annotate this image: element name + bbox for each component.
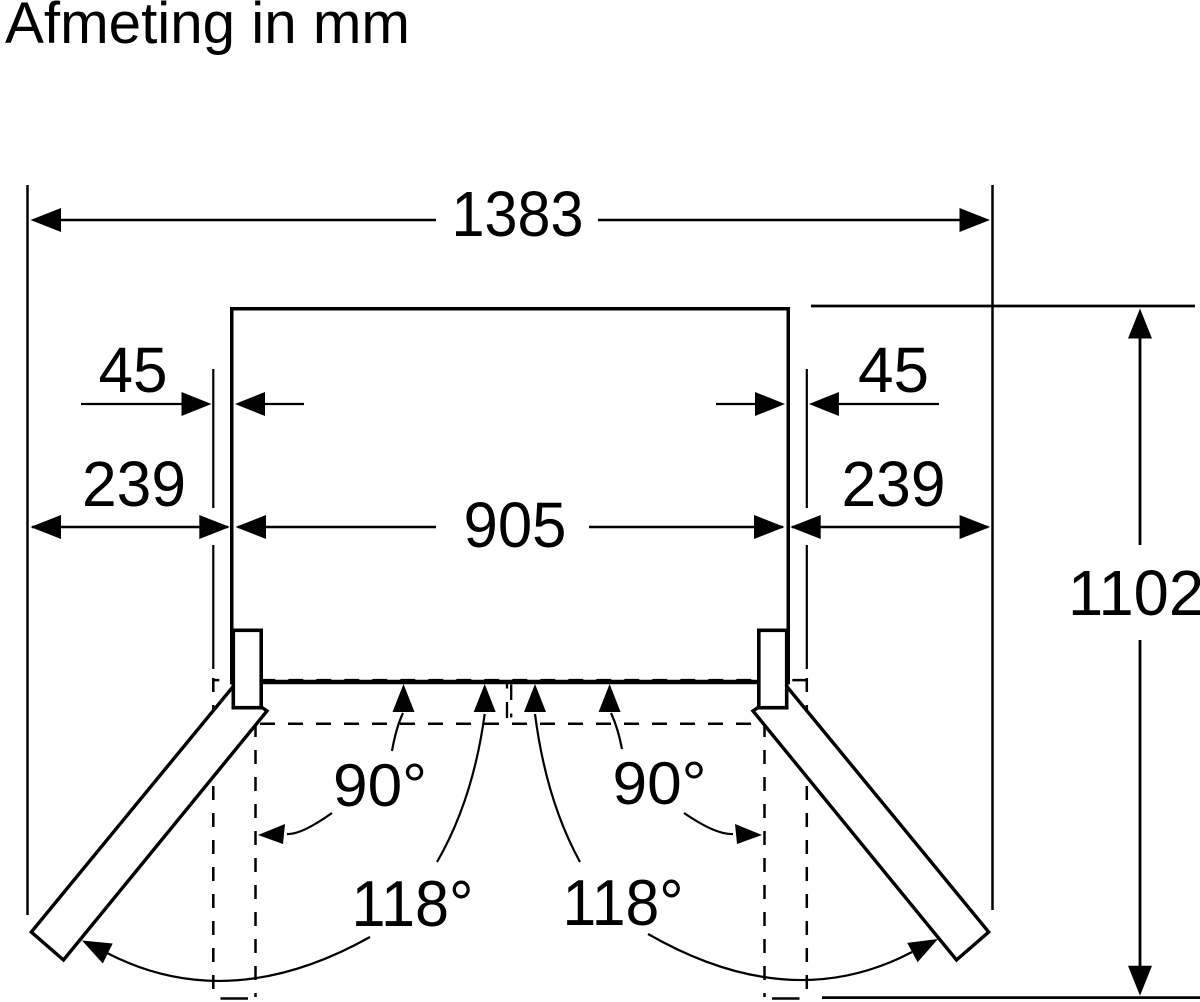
svg-text:239: 239 <box>842 448 946 520</box>
svg-text:239: 239 <box>82 448 186 520</box>
svg-text:1102: 1102 <box>1068 557 1200 629</box>
svg-text:905: 905 <box>464 489 567 561</box>
svg-text:118°: 118° <box>352 867 474 940</box>
svg-text:1383: 1383 <box>452 178 584 250</box>
svg-text:118°: 118° <box>563 866 684 939</box>
svg-text:45: 45 <box>858 334 929 406</box>
svg-text:Afmeting in mm: Afmeting in mm <box>5 0 410 56</box>
svg-text:45: 45 <box>99 334 168 406</box>
svg-text:90°: 90° <box>613 750 707 817</box>
svg-text:90°: 90° <box>333 752 427 819</box>
